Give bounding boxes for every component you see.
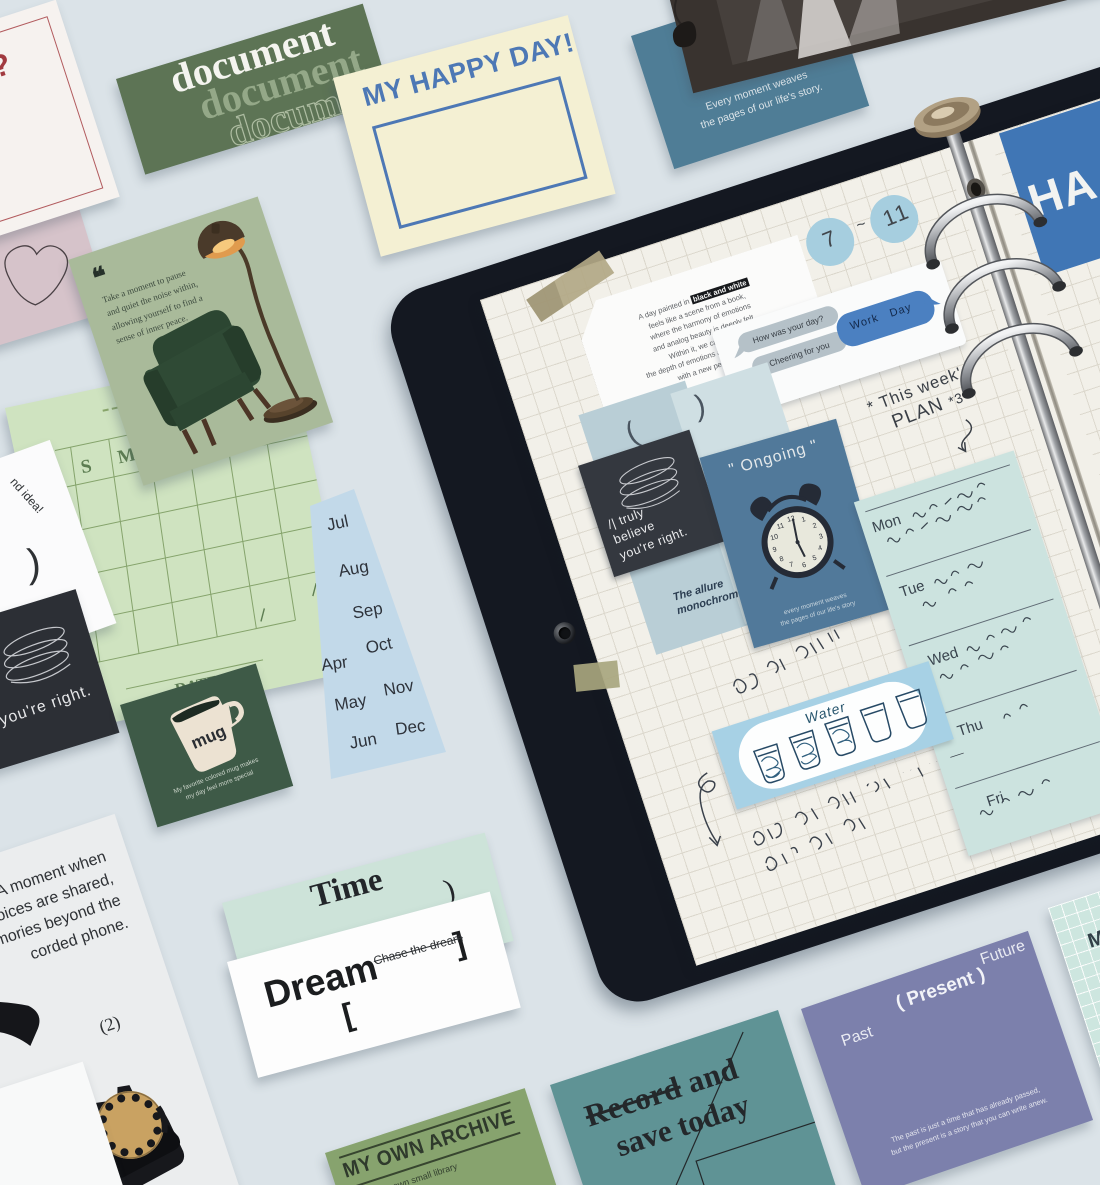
svg-text:S: S [79, 456, 94, 479]
